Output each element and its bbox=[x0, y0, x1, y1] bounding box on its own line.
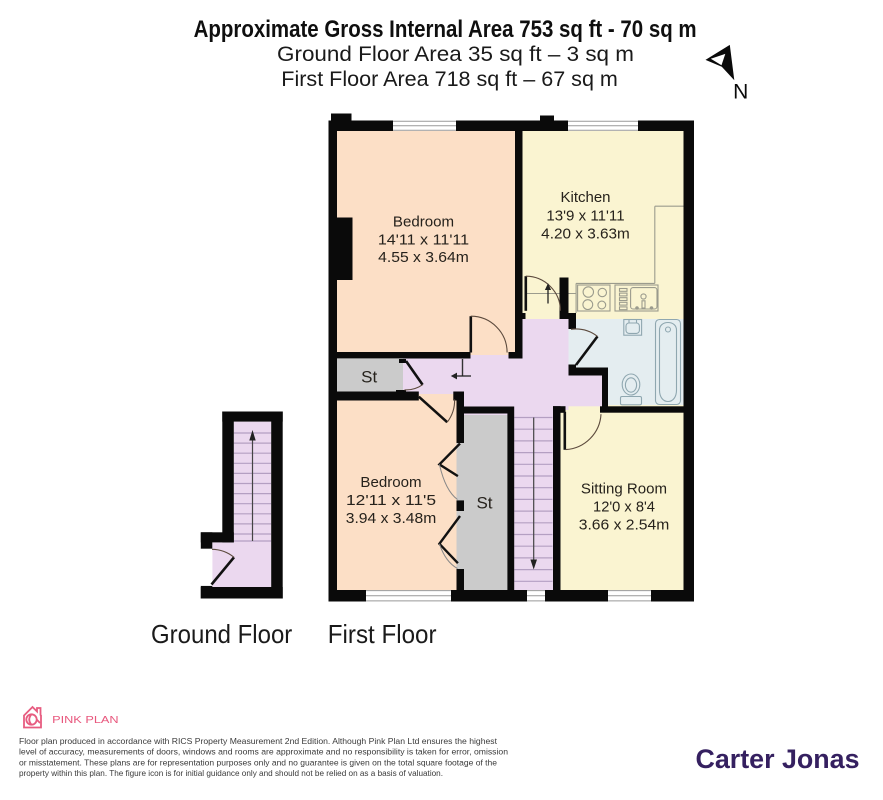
svg-text:PINK PLAN: PINK PLAN bbox=[52, 715, 119, 726]
svg-text:Sitting Room: Sitting Room bbox=[581, 482, 667, 498]
svg-text:or misstatement. These plans a: or misstatement. These plans are for rep… bbox=[19, 757, 497, 767]
svg-text:12'0 x 8'4: 12'0 x 8'4 bbox=[593, 500, 655, 516]
svg-text:Kitchen: Kitchen bbox=[561, 190, 611, 206]
svg-text:Bedroom: Bedroom bbox=[393, 215, 454, 231]
svg-text:Ground Floor Area 35 sq ft – 3: Ground Floor Area 35 sq ft – 3 sq m bbox=[277, 43, 634, 66]
svg-text:14'11 x 11'11: 14'11 x 11'11 bbox=[378, 232, 469, 248]
svg-text:Carter Jonas: Carter Jonas bbox=[696, 744, 860, 774]
svg-text:level of accuracy, measurement: level of accuracy, measurements of doors… bbox=[19, 747, 508, 757]
svg-text:Ground Floor: Ground Floor bbox=[151, 619, 293, 649]
svg-text:St: St bbox=[361, 367, 377, 386]
svg-text:3.94 x 3.48m: 3.94 x 3.48m bbox=[346, 511, 437, 527]
svg-text:property within this plan. The: property within this plan. The figure ic… bbox=[19, 768, 443, 778]
svg-text:Approximate Gross Internal Are: Approximate Gross Internal Area 753 sq f… bbox=[194, 16, 697, 43]
svg-text:N: N bbox=[733, 81, 748, 104]
svg-text:3.66 x 2.54m: 3.66 x 2.54m bbox=[579, 518, 670, 534]
svg-text:4.55 x 3.64m: 4.55 x 3.64m bbox=[378, 250, 469, 266]
svg-text:4.20 x 3.63m: 4.20 x 3.63m bbox=[541, 226, 630, 242]
svg-text:First Floor: First Floor bbox=[328, 619, 437, 649]
svg-text:12'11 x 11'5: 12'11 x 11'5 bbox=[346, 493, 436, 509]
svg-text:Bedroom: Bedroom bbox=[360, 475, 421, 491]
svg-text:St: St bbox=[476, 494, 492, 513]
svg-text:13'9 x 11'11: 13'9 x 11'11 bbox=[546, 208, 624, 224]
svg-text:Floor plan produced in accorda: Floor plan produced in accordance with R… bbox=[19, 736, 498, 746]
svg-text:First Floor Area 718 sq ft – 6: First Floor Area 718 sq ft – 67 sq m bbox=[281, 68, 618, 91]
